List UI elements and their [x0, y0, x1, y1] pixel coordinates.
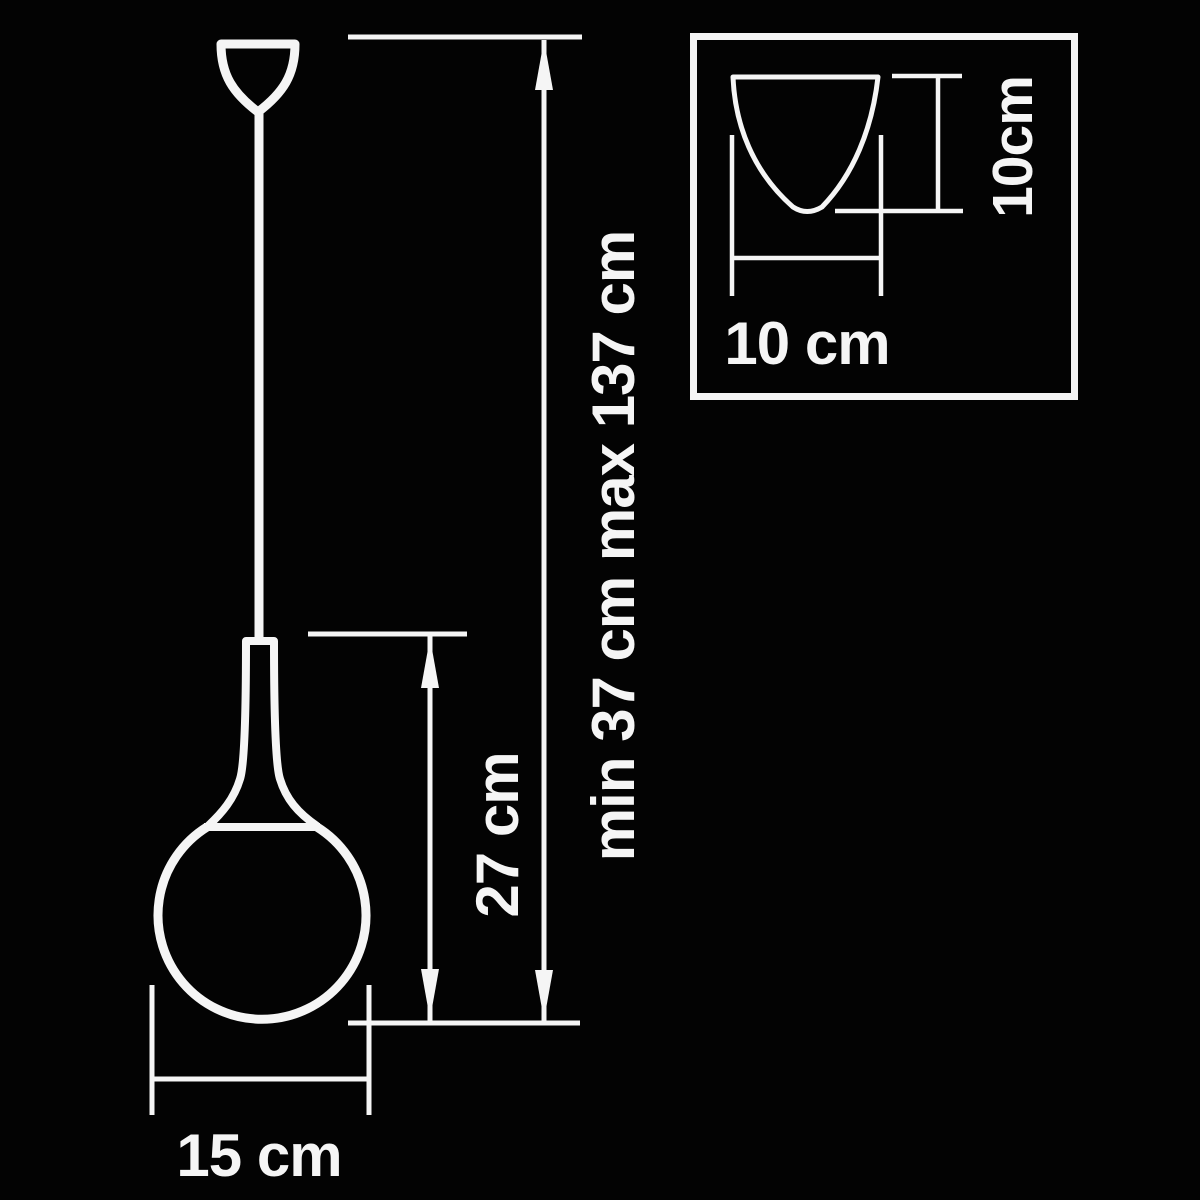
body-height-dimension: 27 cm	[308, 634, 531, 1021]
body-height-dim-arrow-up-icon	[421, 638, 439, 688]
lamp-drawing	[158, 44, 366, 1019]
inset-shade-outline	[733, 77, 878, 212]
shade-detail-inset: 10cm 10 cm	[694, 37, 1075, 397]
lamp-stem-outline	[208, 641, 317, 826]
ceiling-canopy-outline	[221, 44, 295, 112]
glass-globe-outline	[158, 827, 366, 1019]
body-height-dim-label: 27 cm	[464, 752, 531, 917]
body-height-dim-arrow-down-icon	[421, 969, 439, 1019]
overall-height-dim-arrow-up-icon	[535, 40, 553, 90]
overall-height-dim-arrow-down-icon	[535, 970, 553, 1020]
width-dim-label: 15 cm	[176, 1122, 341, 1189]
overall-height-dim-label: min 37 cm max 137 cm	[580, 231, 647, 861]
inset-width-dim-label: 10 cm	[724, 310, 889, 377]
pendant-lamp-dimension-diagram: 15 cm 27 cm min 37 cm max 137 cm 10cm 10…	[0, 0, 1200, 1200]
inset-height-dim-label: 10cm	[981, 76, 1045, 218]
